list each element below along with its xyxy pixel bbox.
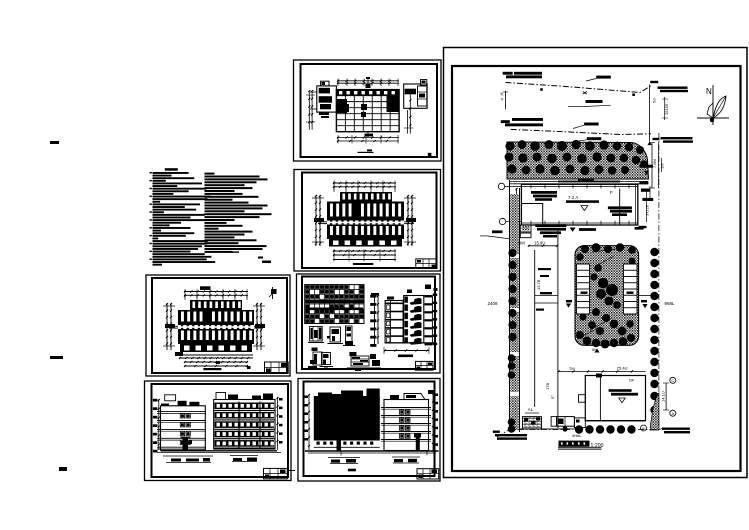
svg-text:J-0.26: J-0.26 (645, 204, 650, 216)
svg-text:13.7B: 13.7B (536, 279, 541, 290)
svg-text:DF: DF (629, 378, 635, 383)
svg-text:C: C (671, 378, 674, 383)
svg-text:17B: 17B (545, 383, 550, 390)
svg-text:1M: 1M (660, 163, 665, 169)
svg-text:5d: 5d (652, 99, 657, 103)
svg-text:968L: 968L (665, 301, 676, 306)
svg-text:14.1U: 14.1U (661, 391, 666, 402)
svg-text:B: B (642, 426, 645, 431)
svg-text:AL: AL (528, 407, 534, 412)
svg-text:A: A (671, 411, 674, 416)
svg-text:TM: TM (569, 366, 575, 371)
svg-text:7.2 A: 7.2 A (568, 195, 578, 200)
svg-text:5°: 5° (550, 395, 555, 399)
svg-text:Y: Y (501, 97, 504, 102)
svg-text:2408: 2408 (488, 301, 499, 306)
svg-text:4HAL: 4HAL (572, 433, 583, 438)
svg-text:6M: 6M (592, 347, 598, 352)
svg-text:F: F (610, 190, 613, 195)
svg-text:N: N (706, 87, 712, 96)
svg-text:25.4U: 25.4U (617, 366, 628, 371)
